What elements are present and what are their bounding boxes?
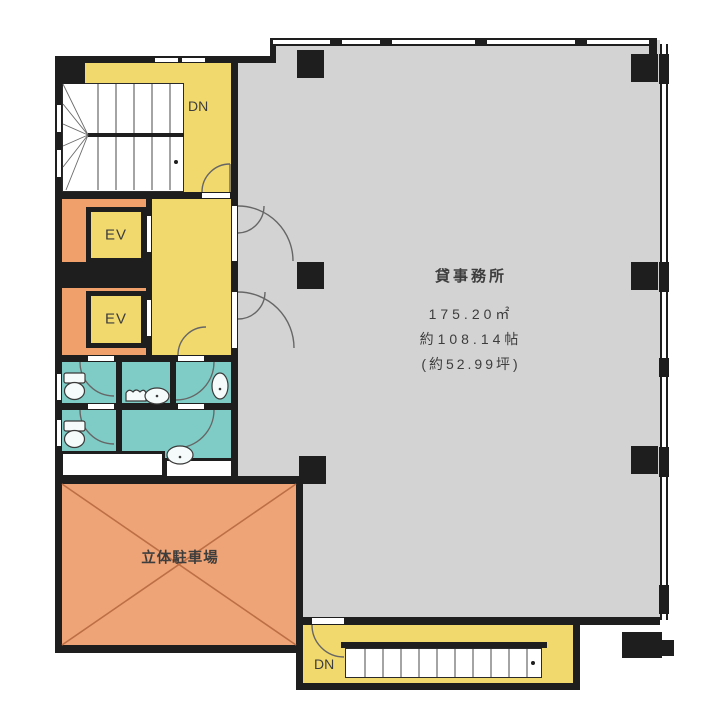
structural-column xyxy=(297,50,324,78)
stair-treads-bottom xyxy=(365,649,535,677)
door-arc xyxy=(176,362,214,400)
stair-bottom-label: DN xyxy=(314,656,334,672)
office-area-jo: 約108.14帖 xyxy=(340,329,602,349)
door-arc xyxy=(238,292,294,348)
structural-column xyxy=(631,262,658,290)
sink-icon xyxy=(145,388,169,404)
elevator-1-label: EV xyxy=(105,227,127,244)
office-room-label: 貸事務所 xyxy=(340,265,602,286)
structural-column xyxy=(299,456,326,484)
office-area-m2: 175.20㎡ xyxy=(340,304,602,324)
urinal-icon xyxy=(126,390,146,401)
door-arc xyxy=(238,206,293,261)
door-arc xyxy=(202,164,230,192)
stair-treads-top xyxy=(63,84,184,190)
door-arc xyxy=(312,625,344,657)
office-label-block: 貸事務所 175.20㎡ 約108.14帖 (約52.99坪) xyxy=(340,265,602,374)
sanitary-fixtures xyxy=(64,373,228,464)
structural-column xyxy=(631,446,658,474)
sink-icon xyxy=(212,373,228,399)
door-arc xyxy=(178,327,206,355)
structural-column xyxy=(297,262,324,289)
floor-plan: DN EV EV 貸事務所 175.20㎡ 約108.14帖 (約52.99坪)… xyxy=(0,0,726,702)
corner-block-bottom-right-arm xyxy=(656,640,674,656)
parking-label: 立体駐車場 xyxy=(141,547,219,568)
office-area-tsubo: (約52.99坪) xyxy=(340,354,602,374)
elevator-2-label: EV xyxy=(105,311,127,328)
structural-column xyxy=(631,54,658,82)
stair-top-label: DN xyxy=(188,98,208,114)
door-arc xyxy=(176,410,214,448)
sink-icon xyxy=(167,446,193,464)
toilet-icon xyxy=(64,373,85,400)
toilet-icon xyxy=(64,421,85,448)
